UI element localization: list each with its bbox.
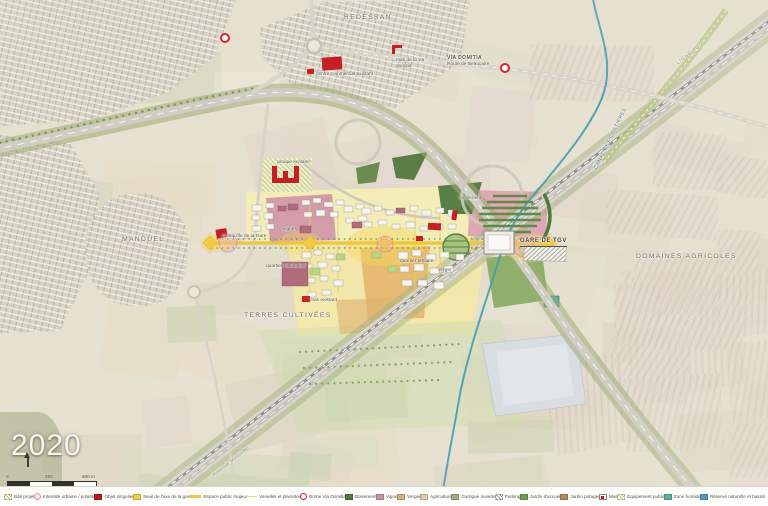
legend-item: Jardin d'accueil — [520, 494, 561, 500]
legend-label: Jardin d'accueil — [530, 494, 562, 499]
legend-swatch — [495, 494, 503, 500]
legend-swatch — [133, 494, 141, 500]
legend-item: Parking — [495, 494, 520, 500]
legend-item: Espace public majeur — [190, 494, 246, 499]
legend-swatch — [397, 494, 405, 500]
legend-item: Intensité urbaine / polarité — [34, 493, 94, 500]
legend-label: Verger — [407, 494, 421, 499]
legend-item: Agriculture — [420, 494, 451, 500]
legend-label: Bâti projet — [14, 494, 35, 499]
legend-swatch — [94, 494, 102, 500]
legend-label: Espace public majeur — [203, 494, 247, 499]
legend-item: Verger — [397, 494, 420, 500]
legend-item: Venelles et placettes — [246, 494, 300, 499]
legend-label: Équipement public — [627, 494, 665, 499]
legend-item: Zone humide — [664, 494, 700, 500]
legend-item: Équipement public — [617, 494, 664, 500]
legend-label: Garrigue ouverte — [461, 494, 495, 499]
legend-item: Objet singulier — [94, 494, 132, 500]
legend-swatch — [345, 494, 353, 500]
legend-item: Boisement — [345, 494, 376, 500]
legend-swatch — [520, 494, 528, 500]
legend-swatch — [560, 494, 568, 500]
legend-label: Boisement — [355, 494, 377, 499]
legend-swatch — [34, 493, 41, 500]
legend-label: Venelles et placettes — [259, 494, 301, 499]
legend-item: Borne Via Domitia — [300, 493, 345, 500]
legend: Bâti projetIntensité urbaine / polaritéO… — [0, 486, 768, 506]
legend-swatch — [599, 494, 607, 500]
legend-label: Réserve naturelle et bassin — [710, 494, 766, 499]
year-label: 2020 — [11, 429, 82, 463]
legend-label: Objet singulier — [104, 494, 133, 499]
legend-label: Vigne — [386, 494, 398, 499]
legend-item: Garrigue ouverte — [451, 494, 494, 500]
legend-item: Seuil de l'axe de la gare — [133, 494, 191, 500]
legend-label: Seuil de l'axe de la gare — [143, 494, 192, 499]
legend-item: Jardin potager — [560, 494, 598, 500]
legend-label: Parking — [505, 494, 521, 499]
legend-label: Jardin potager — [570, 494, 599, 499]
legend-label: Intensité urbaine / polarité — [43, 494, 96, 499]
legend-swatch — [451, 494, 459, 500]
scale-end: 500 m — [82, 474, 95, 479]
scale-mid: 250 — [45, 474, 53, 479]
plan-map: REDESSAN MANDUEL TERRES CULTIVÉES DOMAIN… — [0, 0, 768, 506]
legend-item: Réserve naturelle et bassin — [700, 494, 764, 500]
legend-label: Borne Via Domitia — [309, 494, 346, 499]
legend-swatch — [664, 494, 672, 500]
legend-item: Vigne — [376, 494, 397, 500]
scale-start: 0 — [6, 474, 9, 479]
legend-swatch — [246, 496, 257, 497]
legend-swatch — [376, 494, 384, 500]
legend-swatch — [617, 494, 625, 500]
legend-swatch — [300, 493, 307, 500]
legend-label: Agriculture — [430, 494, 452, 499]
legend-label: Zone humide — [674, 494, 701, 499]
legend-swatch — [4, 494, 12, 500]
legend-swatch — [700, 494, 708, 500]
legend-item: Bâti projet — [4, 494, 34, 500]
legend-item: Mas — [599, 494, 617, 500]
legend-swatch — [420, 494, 428, 500]
legend-swatch — [190, 495, 201, 498]
map-chrome: 2020 0 250 500 m — [0, 0, 768, 506]
north-arrow-icon — [23, 452, 33, 468]
